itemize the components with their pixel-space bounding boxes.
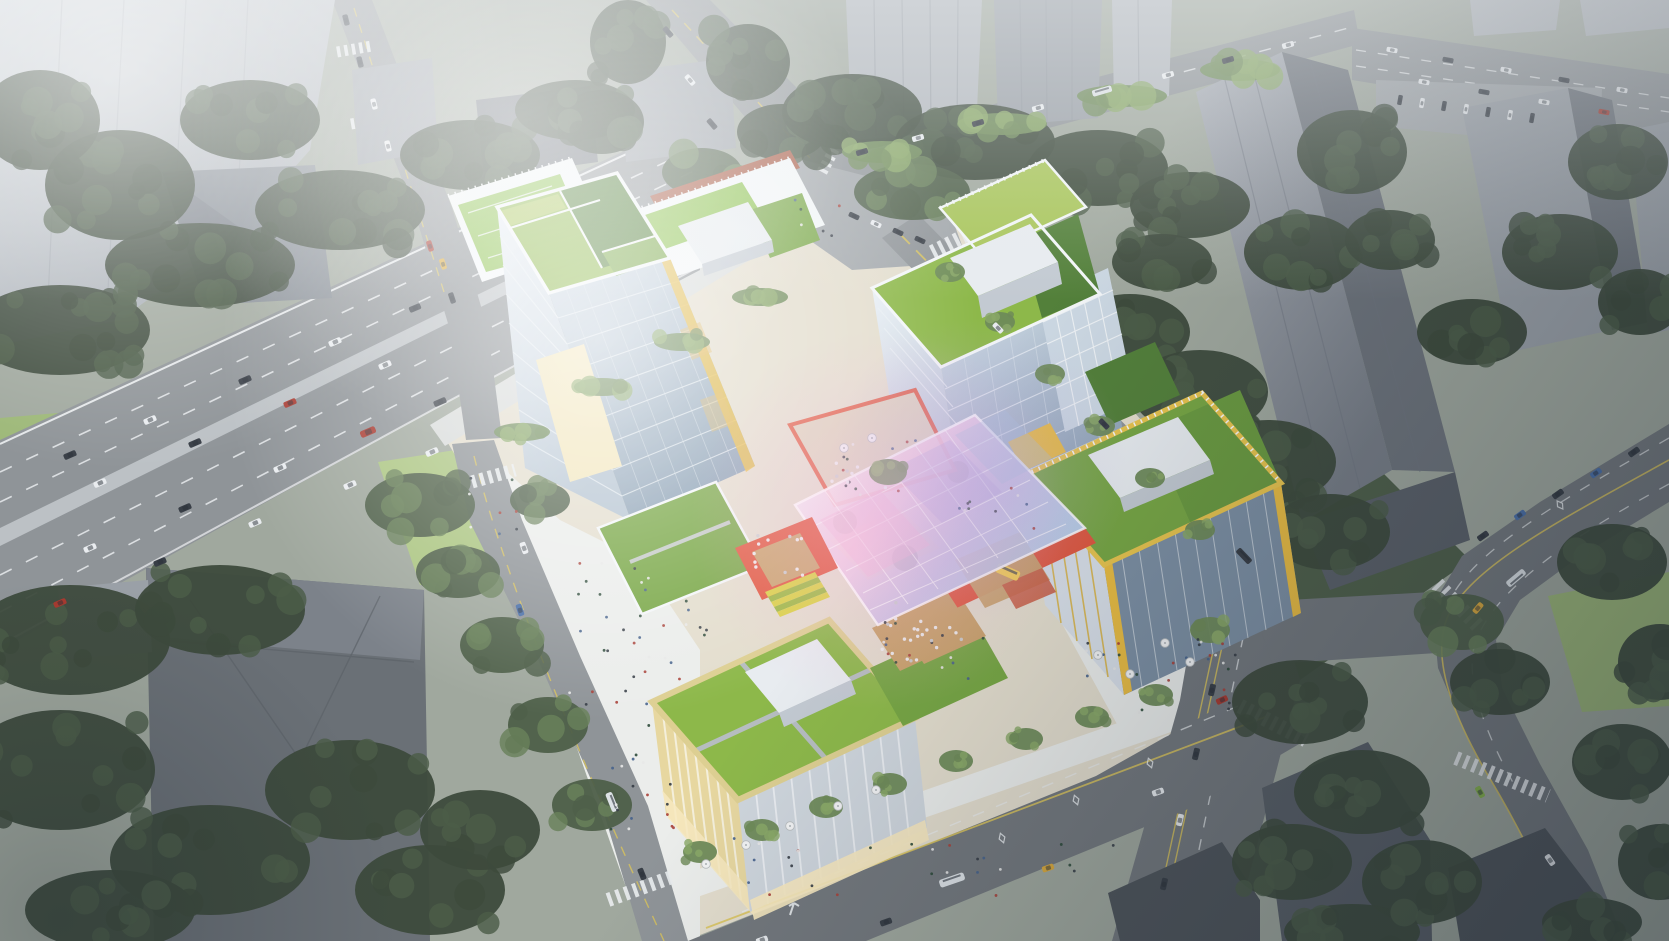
render-viewport bbox=[0, 0, 1669, 941]
shadow-bottom-left bbox=[0, 0, 1669, 941]
lighting-overlays bbox=[0, 0, 1669, 941]
aerial-render bbox=[0, 0, 1669, 941]
